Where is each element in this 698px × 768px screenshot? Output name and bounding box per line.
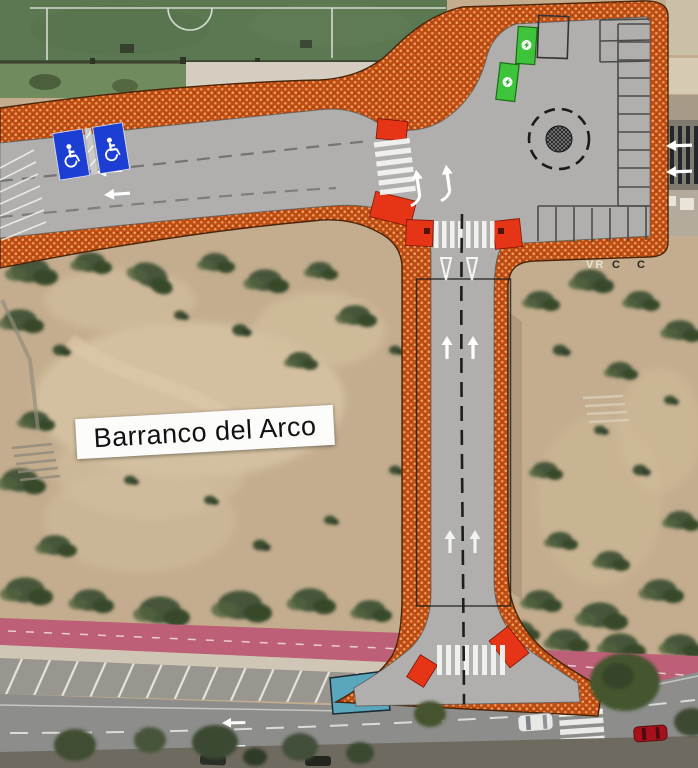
green-space-2 <box>496 63 519 102</box>
aerial-plan-view: VR C C Barranco del Arco <box>0 0 698 768</box>
ground-text-right: C C <box>612 259 652 271</box>
green-space-1 <box>516 26 538 64</box>
car-white <box>517 713 553 732</box>
car-red <box>633 725 667 742</box>
ground-text: VR C C <box>586 259 652 271</box>
curb-marker <box>498 228 504 234</box>
plan-map-canvas: VR C C <box>0 0 698 768</box>
curb-marker <box>424 228 430 234</box>
ground-text-left: VR <box>586 259 605 271</box>
